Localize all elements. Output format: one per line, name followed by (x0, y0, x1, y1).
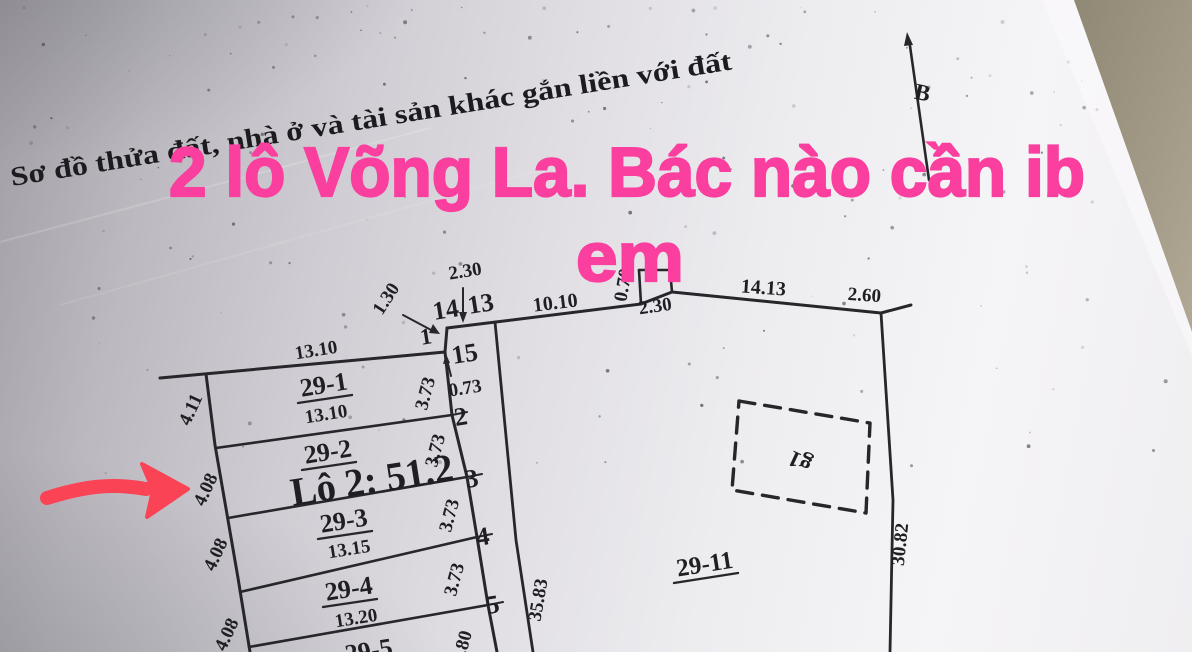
vertex-13-label: 13 (466, 287, 496, 320)
dim-row3-bottom: 13.15 (326, 536, 372, 563)
vertex-15-label: 15 (450, 337, 480, 370)
parcel-29-5-label: 29-5 (343, 633, 395, 652)
dim-seg-1-14: 1.30 (369, 279, 405, 318)
structure-g1-label: g1 (784, 446, 815, 478)
boundary-right-line (881, 313, 893, 652)
dim-left-29-4: 4.08 (210, 615, 243, 652)
parcel-29-11-label: 29-11 (675, 547, 735, 583)
dim-seg-14-13: 2.30 (447, 259, 483, 285)
dim-right-29-4: 3.73 (440, 561, 469, 599)
strip-left-edge (206, 374, 250, 652)
dim-bottom-partial: .80 (450, 628, 476, 652)
dim-35-83: 35.83 (525, 577, 553, 623)
dim-seg-15-2: 0.73 (447, 376, 483, 402)
dim-2-30-notch: 2.30 (637, 294, 673, 319)
dim-row4-bottom: 13.20 (333, 605, 379, 632)
vertex-14-label: 14 (431, 293, 461, 326)
overlay-text-line1: 2 lô Võng La. Bác nào cần ib (169, 133, 1085, 211)
north-arrowhead (904, 32, 913, 46)
survey-diagram: 13.10 13.10 13.15 13.20 4.11 4.08 4.08 4… (0, 0, 1192, 652)
dim-left-29-3: 4.08 (199, 535, 232, 574)
dim-right-29-1: 3.73 (411, 375, 440, 413)
vertex-3-label: 3 (463, 463, 480, 494)
dim-row1-bottom: 13.10 (303, 401, 349, 428)
dim-2-60: 2.60 (847, 284, 882, 307)
vertex-5-label: 5 (484, 589, 501, 620)
vertex-1-label: 1 (418, 323, 433, 349)
dim-left-29-2: 4.08 (189, 470, 222, 509)
dim-left-29-1: 4.11 (175, 391, 208, 429)
annotation-arrow (47, 464, 188, 517)
vertex-4-label: 4 (474, 521, 491, 552)
dim-row1-top: 13.10 (293, 337, 339, 364)
dim-14-13-long: 14.13 (740, 275, 786, 300)
paper-background: 13.10 13.10 13.15 13.20 4.11 4.08 4.08 4… (0, 0, 1192, 652)
segment-1-14 (445, 328, 447, 352)
dim-right-29-3: 3.73 (435, 497, 464, 535)
dim-30-82: 30.82 (888, 522, 913, 567)
overlay-text-line2: em (576, 218, 684, 296)
